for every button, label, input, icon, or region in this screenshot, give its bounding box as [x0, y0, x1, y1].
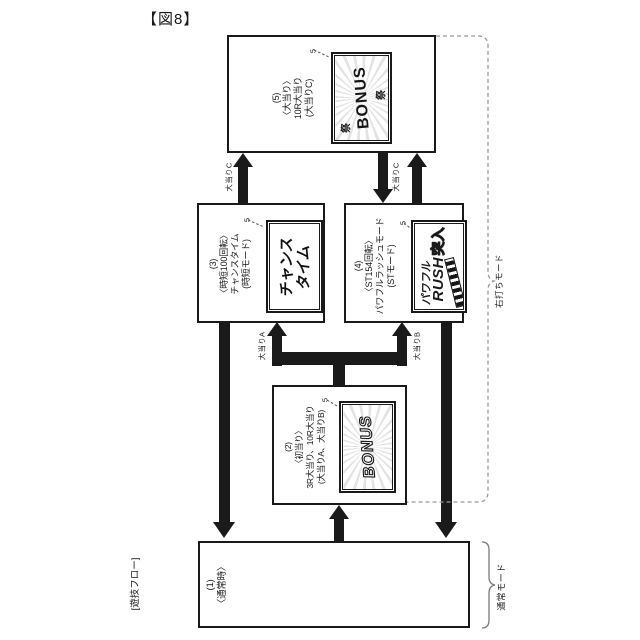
figure-number-label: 【図8】 [142, 8, 199, 29]
screen-frame: チャンス タイム [269, 223, 320, 310]
ref-numeral-5: 5 [320, 395, 330, 404]
node-mode-label: (大当りA、大当りB) [316, 410, 327, 484]
screen-thumbnail-chance-time: チャンス タイム [266, 220, 323, 313]
node-number: (1) [205, 580, 217, 591]
arrow-shaft [378, 153, 388, 189]
ref-numeral-5: 5 [398, 218, 408, 227]
node-name: 3R大当り、10R大当り [305, 405, 316, 488]
normal-mode-label: 通常モード [495, 561, 506, 613]
node-number: (3) [208, 259, 219, 269]
screen-thumbnail-bonus-dark: 祭 BONUS 祭 [331, 52, 392, 144]
node-1-text: (1) 〈通常時〉 [204, 559, 230, 611]
node-name: 10R大当り [293, 77, 304, 119]
bonus-text: BONUS [350, 66, 372, 130]
node-name: パワフルラッシュモード [375, 218, 386, 315]
game-flow-label: [遊技フロー] [128, 544, 140, 624]
arrow-shaft [441, 323, 452, 522]
node-condition: 〈ST154回転〉 [364, 236, 375, 297]
arrow-head [435, 522, 457, 538]
arrow-head [213, 522, 235, 538]
arrow-head [267, 322, 287, 336]
node-2-text: (2) 〈初当り〉 3R大当り、10R大当り (大当りA、大当りB) [282, 394, 327, 500]
node-number: (5) [271, 93, 282, 103]
bonus-text: BONUS [356, 415, 378, 478]
arrow-label-ooatari-b: 大当りB [412, 329, 422, 363]
screen-image: チャンス タイム [270, 224, 319, 309]
matsuri-stamp-icon: 祭 [372, 90, 387, 100]
film-strip-icon [444, 257, 464, 308]
arrow-head [392, 322, 412, 336]
arrow-shaft [219, 323, 230, 522]
node-box-1: (1) 〈通常時〉 [198, 541, 470, 628]
node-condition: 〈初当り〉 [294, 426, 305, 468]
screen-thumbnail-bonus-outline: BONUS [339, 401, 396, 493]
screen-frame: BONUS [342, 404, 393, 490]
arrow-stem [333, 364, 345, 385]
arrow-head [329, 505, 349, 519]
node-box-5: (5) 〈大当り〉 10R大当り (大当りC) 5 祭 BONUS 祭 [227, 35, 436, 153]
ref-numeral-5: 5 [308, 46, 318, 55]
node-mode-label: (大当りC) [304, 79, 315, 117]
node-name: チャンスタイム [230, 233, 241, 294]
arrow-head [233, 153, 253, 167]
node-5-text: (5) 〈大当り〉 10R大当り (大当りC) [270, 49, 315, 147]
screen-title: チャンス [278, 236, 295, 298]
node-4-text: (4) 〈ST154回転〉 パワフルラッシュモード (STモード) [352, 214, 397, 318]
screen-thumbnail-powerful-rush: パワフル RUSH 突入 [411, 220, 467, 313]
node-number: (4) [353, 261, 364, 271]
node-box-3: (3) 〈時短100回転〉 チャンスタイム (時短モード) 5 チャンス タイム [197, 203, 325, 323]
node-mode-label: (STモード) [386, 244, 397, 287]
arrow-head [407, 153, 427, 167]
arrow-label-ooatari-c-left: 大当りC [224, 161, 234, 193]
arrow-shaft [334, 518, 344, 541]
arrow-shaft [238, 167, 248, 203]
node-3-text: (3) 〈時短100回転〉 チャンスタイム (時短モード) [207, 214, 252, 314]
screen-title: 突入 [428, 227, 448, 255]
node-condition: 〈大当り〉 [282, 76, 293, 120]
node-mode-label: (時短モード) [241, 239, 252, 289]
node-box-2: (2) 〈初当り〉 3R大当り、10R大当り (大当りA、大当りB) 5 BON… [272, 385, 407, 505]
matsuri-stamp-icon: 祭 [337, 123, 352, 133]
node-condition: 〈時短100回転〉 [219, 230, 230, 297]
screen-image: パワフル RUSH 突入 [415, 224, 463, 309]
right-strike-mode-label: 右打ちモード [493, 253, 504, 309]
ref-numeral-5: 5 [242, 215, 252, 224]
screen-image: 祭 BONUS 祭 [335, 56, 388, 140]
normal-mode-brace [482, 542, 495, 628]
arrow-shaft [412, 167, 422, 203]
screen-image: BONUS [343, 405, 392, 489]
screen-title: タイム [295, 243, 312, 290]
arrow-label-ooatari-c-right: 大当りC [391, 161, 401, 193]
node-condition: 〈通常時〉 [217, 562, 229, 609]
arrow-label-ooatari-a: 大当りA [257, 329, 267, 363]
node-box-4: (4) 〈ST154回転〉 パワフルラッシュモード (STモード) 5 パワフル… [344, 203, 464, 323]
patent-figure-canvas: 【図8】 [遊技フロー] (5) 〈大当り〉 10R大当り (大当りC) 5 祭… [0, 0, 640, 640]
node-number: (2) [283, 442, 294, 452]
screen-frame: パワフル RUSH 突入 [414, 223, 464, 310]
screen-frame: 祭 BONUS 祭 [334, 55, 389, 141]
